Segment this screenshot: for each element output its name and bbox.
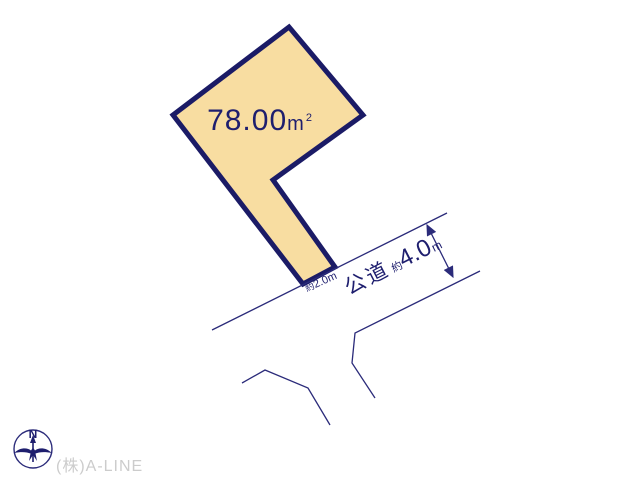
parcel-shape <box>173 27 363 284</box>
parcel-area-label: 78.00m2 <box>160 101 360 141</box>
area-unit: m <box>287 113 305 135</box>
site-plan-drawing: N <box>0 0 640 480</box>
side-road-edge-left <box>242 370 330 425</box>
site-plan-canvas: N 78.00m2 約2.0m 公道約4.0m (株)A-LINE <box>0 0 640 480</box>
company-credit: (株)A-LINE <box>56 452 143 476</box>
area-unit-sup: 2 <box>306 112 313 124</box>
north-compass-icon: N <box>14 427 52 468</box>
area-value: 78.00 <box>207 104 287 137</box>
